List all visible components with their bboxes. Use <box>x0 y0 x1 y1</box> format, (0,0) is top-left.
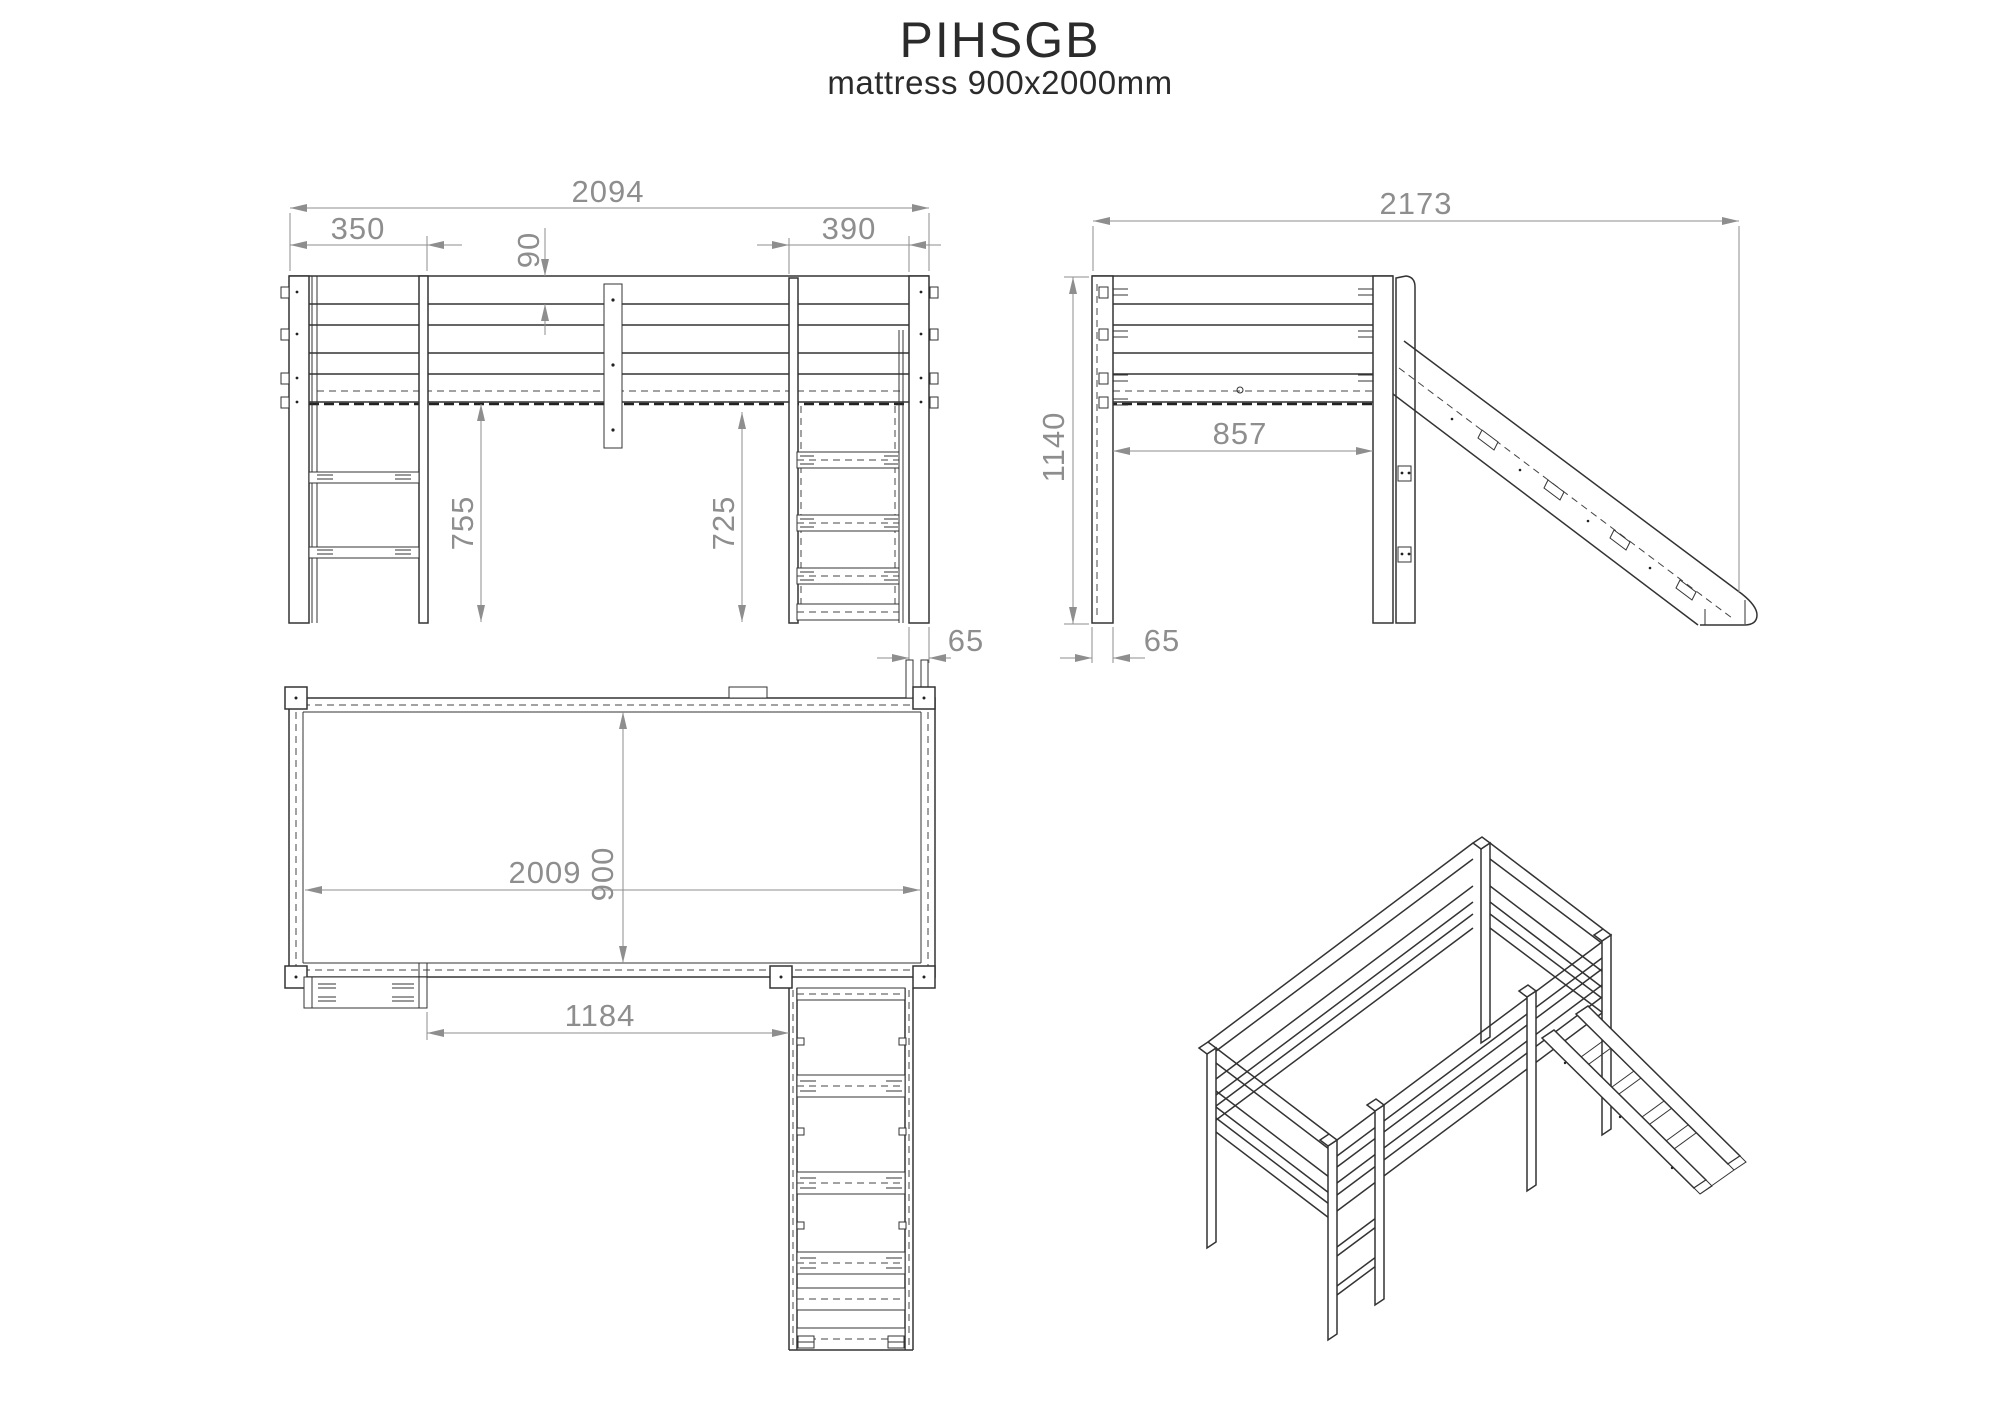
front-low-bar-upper <box>309 472 419 483</box>
isometric-view <box>1199 837 1746 1340</box>
dim-side-total-height: 1140 <box>1036 412 1071 483</box>
dim-front-left-post-offset: 350 <box>331 211 386 246</box>
top-shelf-bar <box>304 977 427 1008</box>
side-right-post <box>1373 276 1393 623</box>
dim-top-mattress-width: 900 <box>585 847 620 902</box>
side-left-post <box>1092 276 1113 623</box>
top-slide-plan <box>789 988 913 1350</box>
dim-front-total-width: 2094 <box>572 174 645 209</box>
dim-side-total-depth: 2173 <box>1380 186 1453 221</box>
iso-post-mid-right <box>1519 985 1536 1191</box>
front-slide-steps <box>797 452 899 620</box>
dim-top-mattress-length: 2009 <box>509 855 582 890</box>
dim-front-slide-section-width: 390 <box>822 211 877 246</box>
iso-post-mid-left <box>1367 1099 1384 1305</box>
iso-post-nw <box>1199 1042 1216 1248</box>
side-slide <box>1393 341 1757 625</box>
iso-post-sw <box>1320 1134 1337 1340</box>
slide-support-board <box>1396 276 1415 623</box>
dim-front-rail-board-height: 90 <box>511 232 546 268</box>
dim-top-front-opening: 1184 <box>565 998 636 1033</box>
dim-front-clearance-left: 755 <box>445 496 480 551</box>
top-center-board-tab <box>729 687 767 698</box>
iso-post-ne <box>1473 837 1490 1043</box>
page-title: PIHSGB <box>900 12 1101 68</box>
dim-side-clear-span: 857 <box>1213 416 1268 451</box>
dim-front-clearance-right: 725 <box>706 496 741 551</box>
dim-front-post-depth: 65 <box>948 623 984 658</box>
top-view: 2009 900 1184 <box>285 660 935 1350</box>
front-mid-left-post <box>419 276 428 623</box>
page-subtitle: mattress 900x2000mm <box>827 64 1172 101</box>
front-view: 2094 350 390 90 755 725 65 <box>281 174 984 663</box>
front-dimensions: 2094 350 390 90 755 725 65 <box>290 174 984 663</box>
front-right-post <box>909 276 929 623</box>
dim-side-post-width: 65 <box>1144 623 1180 658</box>
side-fastener-plates <box>1099 287 1373 408</box>
drawing-sheet: PIHSGB mattress 900x2000mm <box>0 0 2000 1413</box>
front-left-post <box>289 276 309 623</box>
technical-drawing: PIHSGB mattress 900x2000mm <box>0 0 2000 1413</box>
top-frame-outer <box>289 698 935 977</box>
side-view: 2173 1140 857 65 <box>1036 186 1757 663</box>
front-low-bar-lower <box>309 547 419 558</box>
